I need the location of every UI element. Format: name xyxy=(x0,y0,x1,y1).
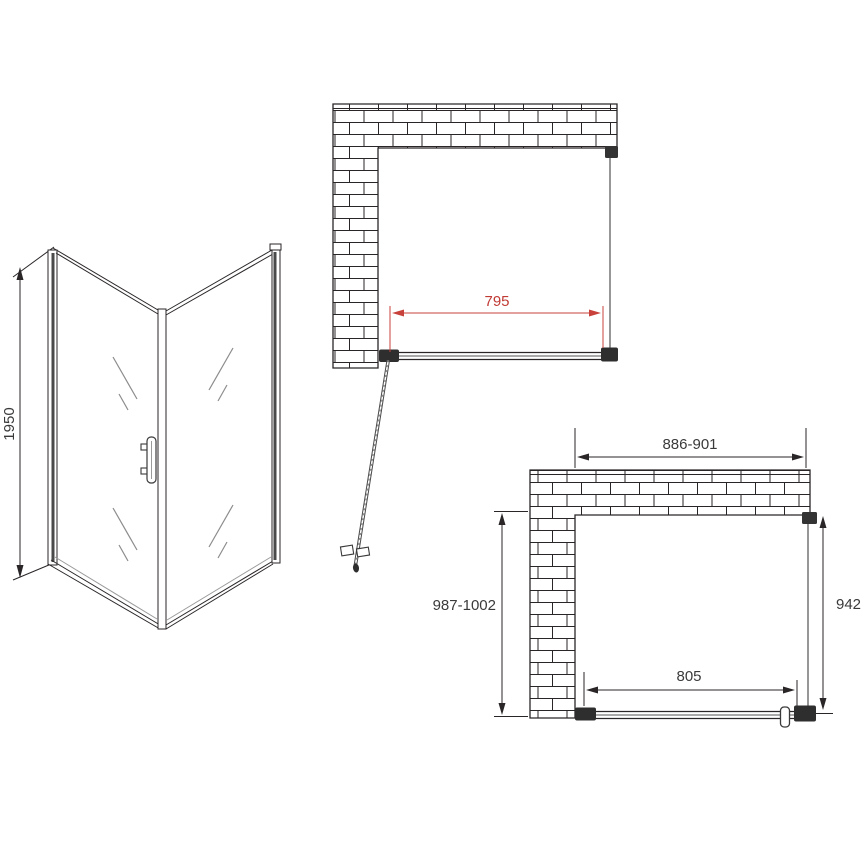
open-door xyxy=(340,360,389,573)
overall-depth-dimension: 987-1002 xyxy=(433,512,528,717)
arrowhead-down-icon xyxy=(820,698,827,710)
door-handle xyxy=(141,437,156,483)
door-panel xyxy=(48,248,160,629)
side-frame-top-cap xyxy=(270,244,281,250)
side-glass-bottom-edge xyxy=(167,557,271,620)
side-bottom-edge-inner xyxy=(166,561,273,625)
door-bottom-edge-inner xyxy=(51,560,160,625)
plan-view-bottom: 886-901 987-1002 942 805 xyxy=(433,428,861,727)
overall-width-dimension: 886-901 xyxy=(575,428,806,468)
door-bottom-edge xyxy=(48,564,160,629)
threshold-profile xyxy=(379,348,618,363)
corner-connector xyxy=(794,706,816,722)
door-width-dimension: 795 xyxy=(390,293,603,352)
arrowhead-right-icon xyxy=(792,454,804,461)
arrowhead-down-icon xyxy=(499,703,506,715)
glass-shine-marks-side xyxy=(209,348,233,558)
isometric-view: 1950 xyxy=(1,244,281,629)
wall-brick-hatch xyxy=(530,470,810,718)
arrowhead-left-icon xyxy=(392,310,404,317)
open-door-handle xyxy=(340,545,353,556)
closed-door-profile xyxy=(575,706,816,728)
wall-bracket xyxy=(605,146,618,158)
door-glass-bottom-edge xyxy=(55,557,157,619)
door-width-label: 795 xyxy=(484,293,509,310)
side-panel-label: 942 xyxy=(836,596,861,613)
door-edge-tip xyxy=(352,563,359,573)
side-top-edge-inner xyxy=(166,254,273,315)
door-frame-shade xyxy=(52,253,55,562)
glass-shine-marks-door xyxy=(113,357,137,561)
arrowhead-left-icon xyxy=(586,687,598,694)
open-door-handle xyxy=(356,547,369,557)
side-panel-dimension: 942 xyxy=(812,516,861,714)
wall-bracket xyxy=(802,512,817,524)
door-top-edge-inner xyxy=(56,253,158,314)
diagram-canvas: 1950 xyxy=(0,0,864,864)
side-top-edge xyxy=(166,250,272,311)
side-frame-shade xyxy=(274,252,277,560)
overall-depth-label: 987-1002 xyxy=(433,597,496,614)
arrowhead-up-icon xyxy=(820,516,827,528)
technical-drawing: 1950 xyxy=(0,0,864,864)
corner-profile xyxy=(158,309,166,629)
wall-brick-hatch xyxy=(333,104,617,368)
overall-width-label: 886-901 xyxy=(662,436,717,453)
arrowhead-right-icon xyxy=(589,310,601,317)
closed-door-handle xyxy=(781,707,790,727)
arrowhead-left-icon xyxy=(577,454,589,461)
arrowhead-up-icon xyxy=(499,513,506,525)
door-opening-dimension: 805 xyxy=(584,668,797,712)
height-dimension-label: 1950 xyxy=(1,407,18,440)
door-hinge xyxy=(575,708,596,721)
door-opening-label: 805 xyxy=(676,668,701,685)
corner-connector xyxy=(601,348,618,362)
side-bottom-edge xyxy=(166,564,273,629)
arrowhead-right-icon xyxy=(783,687,795,694)
side-panel xyxy=(166,244,281,629)
door-top-edge xyxy=(53,248,158,310)
door-hinge xyxy=(379,350,399,363)
